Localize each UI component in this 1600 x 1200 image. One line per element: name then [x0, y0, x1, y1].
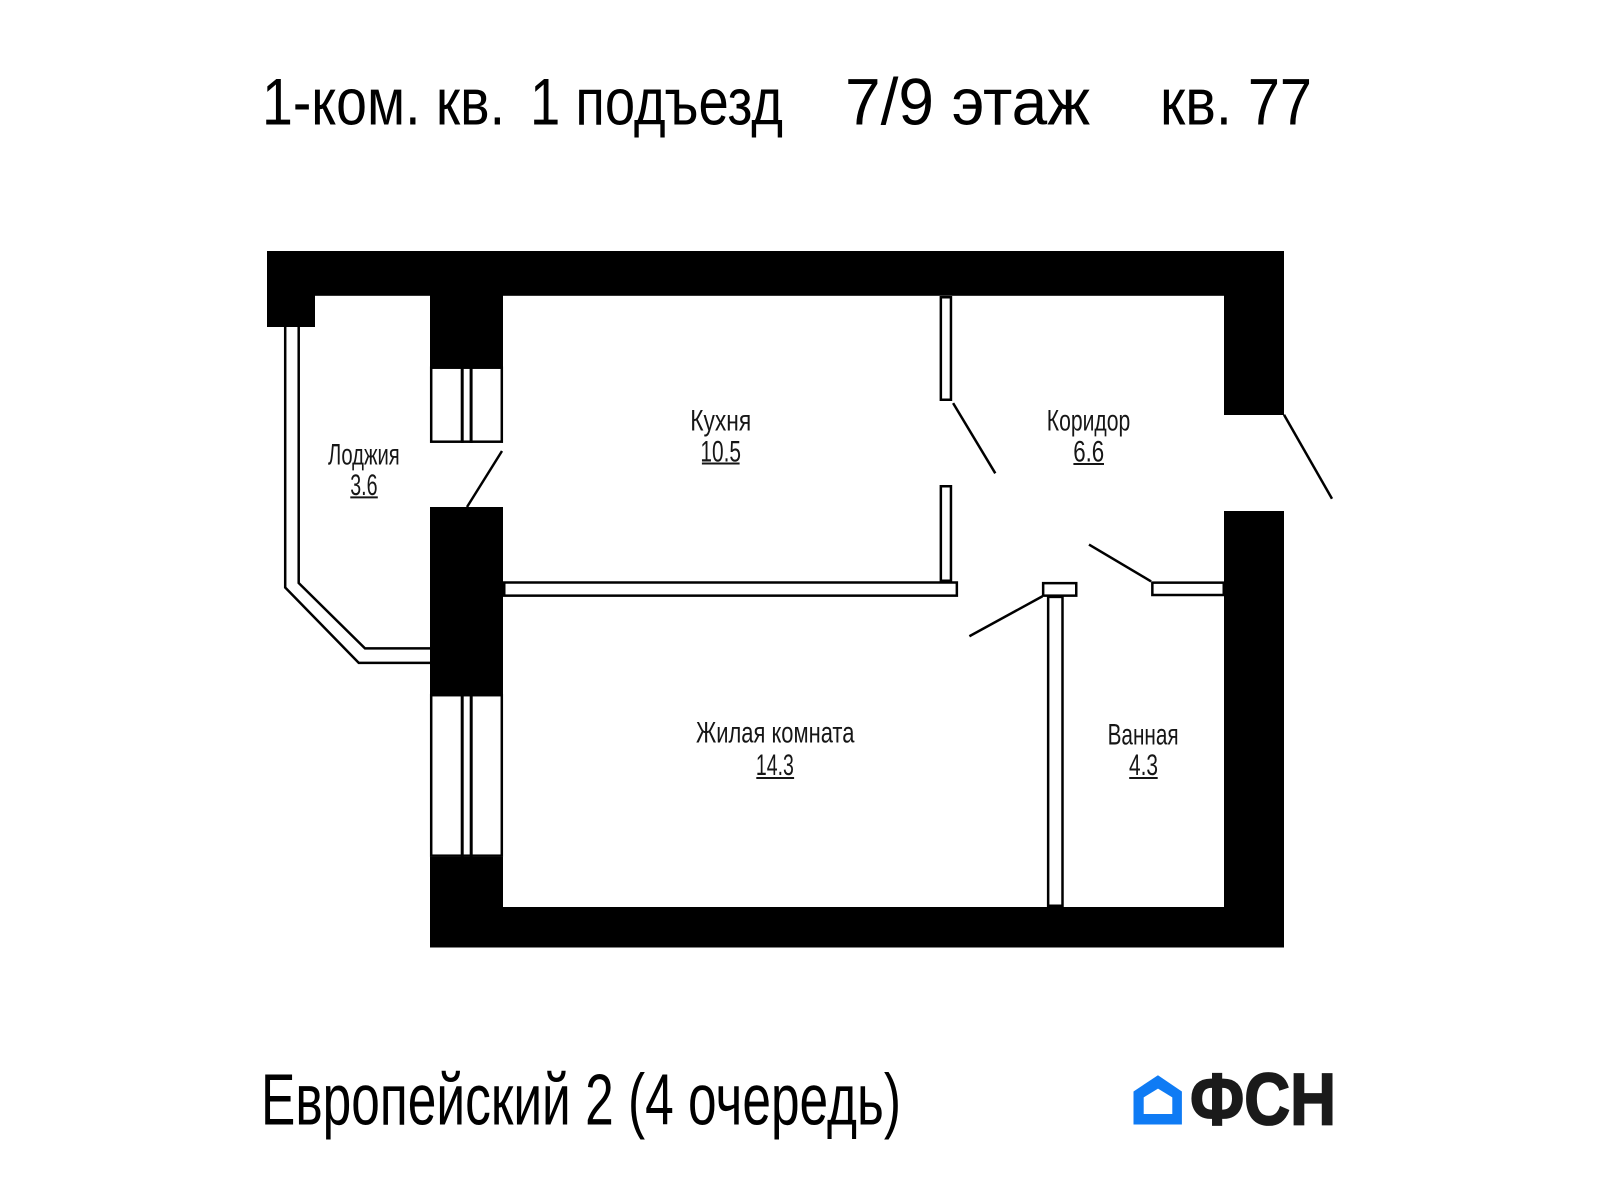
- svg-text:Жилая комната: Жилая комната: [696, 717, 855, 750]
- svg-text:1 подъезд: 1 подъезд: [530, 65, 783, 139]
- svg-text:Лоджия: Лоджия: [328, 439, 400, 472]
- svg-text:1-ком. кв.: 1-ком. кв.: [262, 65, 505, 139]
- svg-text:ФСН: ФСН: [1190, 1060, 1336, 1141]
- svg-text:7/9 этаж: 7/9 этаж: [845, 65, 1090, 139]
- svg-text:Ванная: Ванная: [1108, 719, 1179, 752]
- svg-text:Европейский 2 (4 очередь): Европейский 2 (4 очередь): [261, 1060, 901, 1140]
- svg-text:Коридор: Коридор: [1047, 404, 1131, 437]
- svg-text:Кухня: Кухня: [690, 404, 751, 437]
- svg-text:кв. 77: кв. 77: [1160, 65, 1312, 139]
